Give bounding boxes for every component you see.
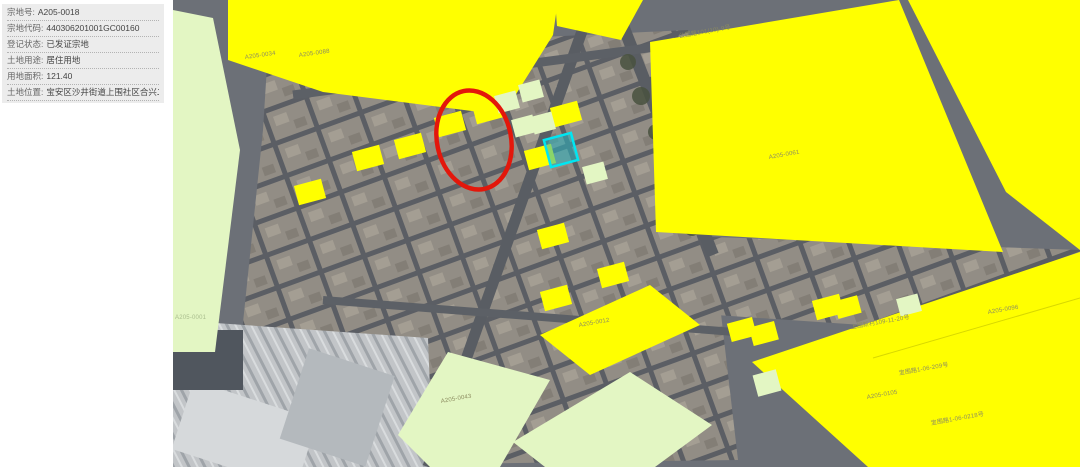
info-row-land-use: 土地用途:居住用地 — [7, 53, 159, 69]
selected-parcel-highlight[interactable] — [544, 133, 578, 167]
field-value: 121.40 — [46, 71, 72, 81]
field-label: 土地用途: — [7, 55, 43, 65]
land-parcel-map-app: { "panel": { "rows": [ {"label": "宗地号:",… — [0, 0, 1080, 467]
field-label: 宗地代码: — [7, 23, 43, 33]
parcel-label: A205-0001 — [175, 315, 206, 322]
field-label: 登记状态: — [7, 39, 43, 49]
info-row-location: 土地位置:宝安区沙井街道上围社区合兴二巷二号 — [7, 85, 159, 101]
field-label: 土地位置: — [7, 87, 43, 97]
parcel-info-panel: 宗地号:A205-0018 宗地代码:440306201001GC00160 登… — [2, 4, 164, 103]
map-viewport[interactable]: A205-0034 A205-0088 公园路101(10)-9号 A205-0… — [173, 0, 1080, 467]
field-label: 用地面积: — [7, 71, 43, 81]
info-row-parcel-code: 宗地代码:440306201001GC00160 — [7, 21, 159, 37]
info-row-registration-status: 登记状态:已发证宗地 — [7, 37, 159, 53]
field-value: 宝安区沙井街道上围社区合兴二巷二号 — [46, 87, 159, 97]
field-label: 宗地号: — [7, 7, 35, 17]
map-canvas — [173, 0, 1080, 467]
info-row-area: 用地面积:121.40 — [7, 69, 159, 85]
field-value: 居住用地 — [46, 55, 80, 65]
info-row-parcel-number: 宗地号:A205-0018 — [7, 5, 159, 21]
field-value: 已发证宗地 — [46, 39, 89, 49]
field-value: A205-0018 — [38, 7, 80, 17]
field-value: 440306201001GC00160 — [46, 23, 139, 33]
